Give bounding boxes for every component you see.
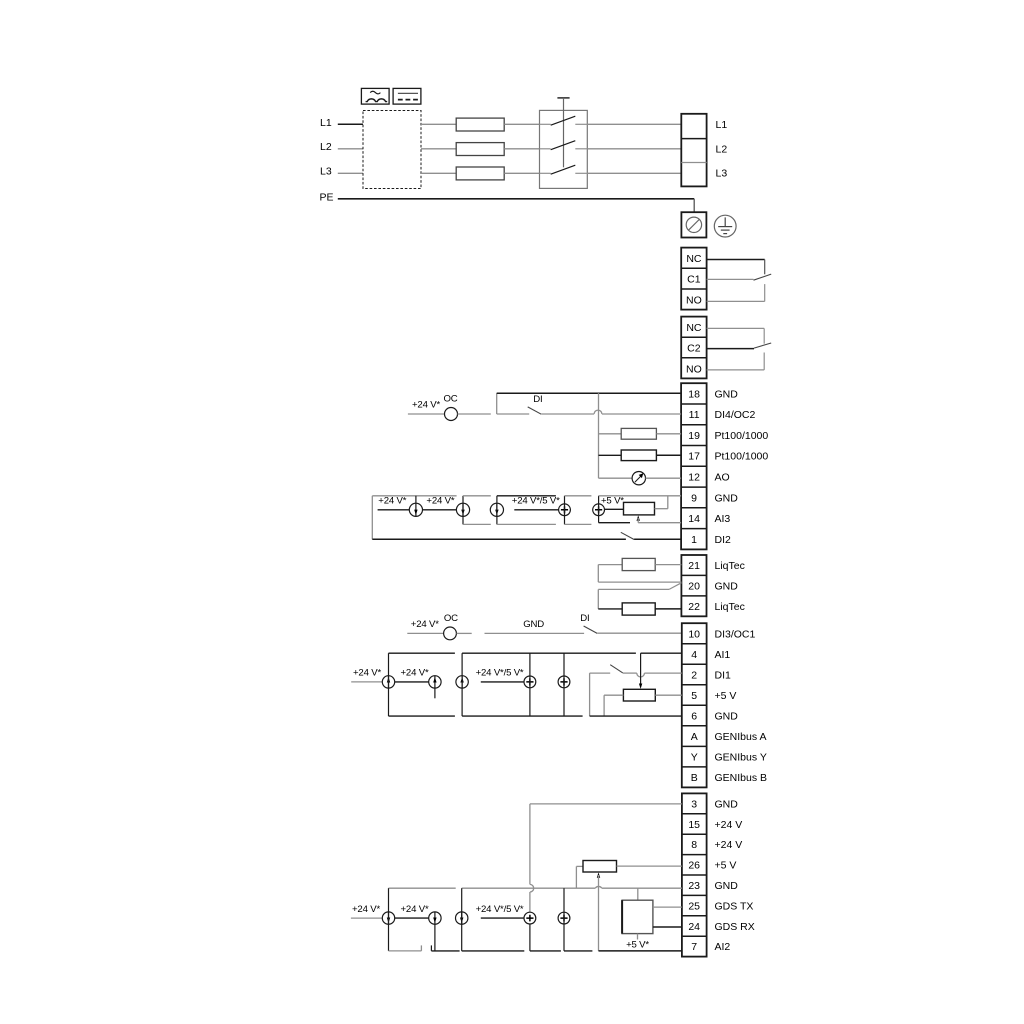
svg-text:AO: AO (715, 472, 730, 484)
svg-text:1: 1 (691, 534, 697, 546)
svg-text:10: 10 (688, 628, 700, 640)
svg-text:DI1: DI1 (715, 669, 732, 681)
svg-text:18: 18 (688, 388, 700, 400)
svg-text:OC: OC (444, 613, 458, 624)
svg-text:C1: C1 (687, 274, 701, 286)
svg-text:NC: NC (686, 253, 702, 265)
svg-text:22: 22 (688, 601, 700, 613)
svg-text:12: 12 (688, 472, 700, 484)
svg-text:25: 25 (688, 900, 700, 912)
svg-text:21: 21 (688, 560, 700, 572)
svg-text:GND: GND (715, 880, 739, 892)
svg-text:LiqTec: LiqTec (715, 560, 745, 572)
svg-text:DI: DI (533, 394, 542, 405)
svg-text:GND: GND (715, 581, 739, 593)
svg-text:DI: DI (580, 613, 589, 624)
svg-text:NO: NO (686, 363, 702, 375)
svg-text:+5 V: +5 V (715, 860, 737, 872)
svg-text:DI3/OC1: DI3/OC1 (715, 628, 756, 640)
svg-text:11: 11 (689, 409, 700, 421)
svg-text:+24 V: +24 V (715, 819, 743, 831)
svg-text:2: 2 (691, 669, 697, 681)
svg-text:GND: GND (715, 492, 739, 504)
svg-text:6: 6 (691, 710, 697, 722)
svg-text:GDS RX: GDS RX (715, 921, 755, 933)
svg-text:GENIbus B: GENIbus B (715, 772, 768, 784)
svg-text:+24 V*: +24 V* (412, 400, 440, 411)
svg-text:GENIbus Y: GENIbus Y (715, 751, 767, 763)
svg-text:26: 26 (688, 860, 700, 872)
svg-text:+5 V*: +5 V* (626, 939, 649, 950)
svg-text:NO: NO (686, 294, 702, 306)
svg-text:GENIbus A: GENIbus A (715, 731, 767, 743)
svg-text:Pt100/1000: Pt100/1000 (715, 451, 769, 463)
svg-text:PE: PE (320, 191, 334, 203)
svg-text:+24 V: +24 V (715, 839, 743, 851)
svg-text:L2: L2 (320, 141, 332, 153)
svg-text:24: 24 (688, 921, 700, 933)
svg-text:AI2: AI2 (715, 941, 731, 953)
svg-text:+5 V*: +5 V* (601, 496, 624, 507)
svg-text:+24 V*: +24 V* (411, 619, 439, 630)
svg-text:+24 V*: +24 V* (401, 668, 429, 679)
svg-text:+24 V*: +24 V* (426, 496, 454, 507)
svg-text:19: 19 (688, 430, 700, 442)
svg-text:+24 V*/5 V*: +24 V*/5 V* (476, 904, 524, 915)
svg-text:15: 15 (688, 819, 700, 831)
svg-text:OC: OC (444, 393, 458, 404)
svg-text:B: B (691, 772, 698, 784)
svg-text:GND: GND (715, 710, 739, 722)
svg-text:L1: L1 (716, 119, 728, 131)
svg-text:DI2: DI2 (715, 534, 732, 546)
svg-text:9: 9 (691, 492, 697, 504)
svg-text:+24 V*: +24 V* (378, 496, 406, 507)
svg-text:14: 14 (688, 513, 700, 525)
svg-text:7: 7 (691, 941, 697, 953)
svg-text:5: 5 (691, 690, 697, 702)
svg-text:+24 V*/5 V*: +24 V*/5 V* (476, 668, 524, 679)
svg-text:DI4/OC2: DI4/OC2 (715, 409, 756, 421)
svg-text:+24 V*: +24 V* (401, 904, 429, 915)
svg-text:4: 4 (691, 649, 697, 661)
svg-text:AI3: AI3 (715, 513, 731, 525)
svg-text:+24 V*/5 V*: +24 V*/5 V* (512, 496, 560, 507)
svg-text:+24 V*: +24 V* (352, 904, 380, 915)
svg-text:L3: L3 (320, 166, 332, 178)
svg-text:AI1: AI1 (715, 649, 731, 661)
svg-text:+5 V: +5 V (715, 690, 737, 702)
svg-text:3: 3 (691, 798, 697, 810)
svg-text:L3: L3 (716, 167, 728, 179)
svg-text:NC: NC (686, 322, 702, 334)
svg-text:GND: GND (523, 619, 544, 630)
svg-text:L1: L1 (320, 117, 332, 129)
svg-text:C2: C2 (687, 343, 701, 355)
svg-text:20: 20 (688, 581, 700, 593)
svg-text:+24 V*: +24 V* (353, 668, 381, 679)
svg-text:GND: GND (715, 388, 739, 400)
svg-text:23: 23 (688, 880, 700, 892)
svg-text:Pt100/1000: Pt100/1000 (715, 430, 769, 442)
svg-text:GDS TX: GDS TX (715, 900, 754, 912)
svg-text:L2: L2 (716, 144, 728, 156)
svg-text:17: 17 (688, 451, 700, 463)
svg-text:LiqTec: LiqTec (715, 601, 745, 613)
svg-text:8: 8 (691, 839, 697, 851)
svg-text:GND: GND (715, 798, 739, 810)
svg-text:Y: Y (691, 751, 698, 763)
svg-text:A: A (691, 731, 698, 743)
